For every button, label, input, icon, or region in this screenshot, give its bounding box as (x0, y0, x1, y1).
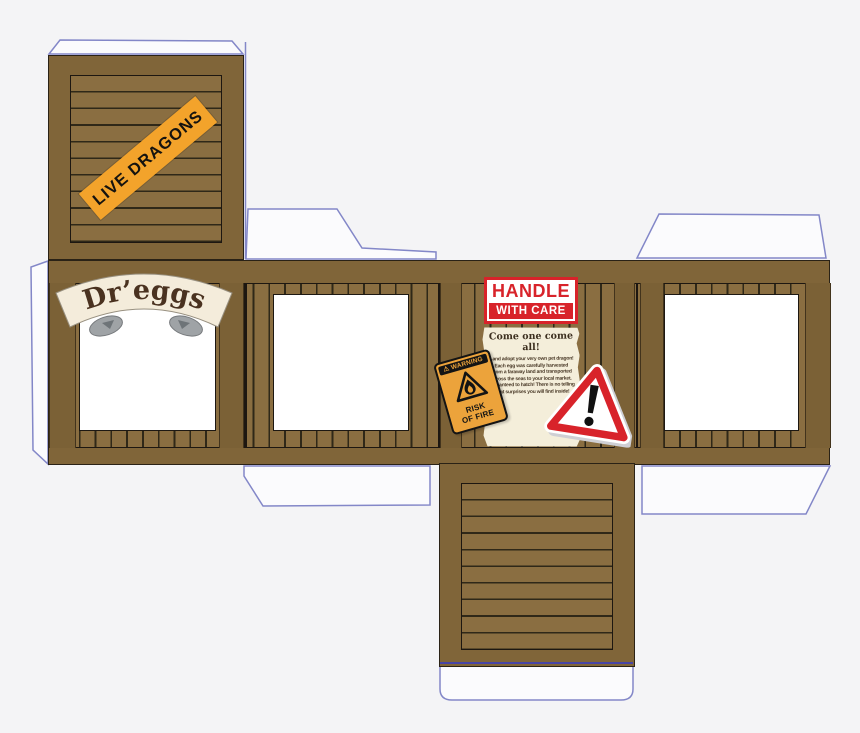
flap-above-panel2 (246, 209, 436, 259)
flap-above-panel4 (637, 214, 826, 258)
papercraft-template-canvas: LIVE DRAGONS Dr’eggs HANDLE WITH CARE (0, 0, 860, 733)
handle-label: HANDLE (487, 280, 575, 302)
photo-window-2 (273, 294, 409, 431)
panel-divider (636, 283, 639, 448)
with-care-label: WITH CARE (489, 303, 573, 319)
dreggs-scroll-banner: Dr’eggs (48, 263, 240, 355)
crate-bottom-panel (439, 463, 635, 667)
stile (640, 283, 664, 448)
fold-line (440, 662, 633, 664)
flap-below-panel4 (642, 466, 830, 514)
hazard-triangle-sign (539, 353, 643, 450)
flap-below-panel2 (244, 466, 430, 506)
panel-divider (244, 283, 247, 448)
flap-left-side (31, 261, 48, 464)
flap-above-lid (49, 40, 243, 54)
poster-title: Come one come all! (485, 331, 576, 354)
bottom-planks (461, 483, 613, 650)
photo-window-3 (664, 294, 799, 431)
stile (805, 283, 831, 448)
handle-with-care-sign: HANDLE WITH CARE (484, 277, 578, 324)
